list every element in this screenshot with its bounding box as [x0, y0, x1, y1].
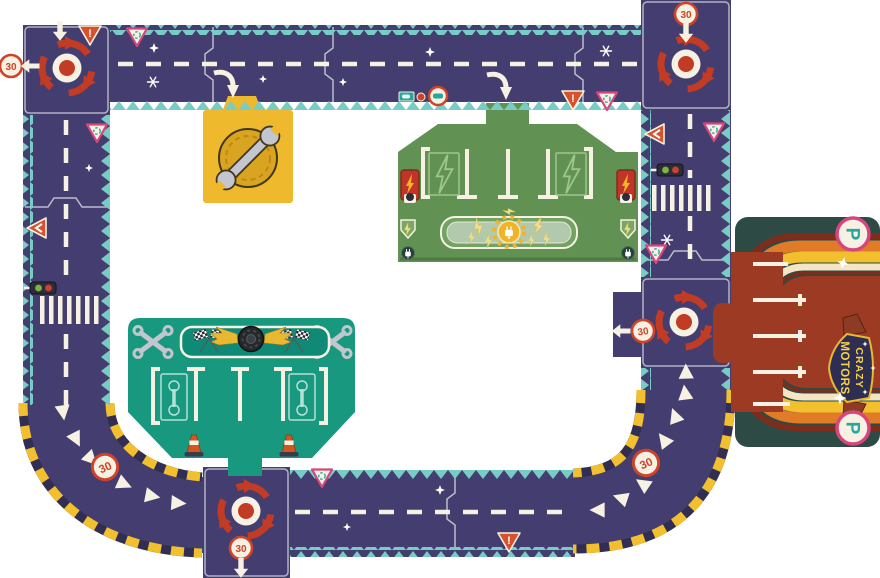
- garage-banner: [181, 327, 329, 358]
- road-puzzle-svg: 30 ! P: [0, 0, 880, 578]
- parking-sign: [837, 218, 869, 250]
- speed-limit-sign: [0, 55, 22, 77]
- parking-piece: CRAZY MOTORS: [713, 217, 880, 447]
- puzzle-scene: 30 ! P: [0, 0, 880, 578]
- repair-piece: [203, 96, 293, 203]
- logo-line2: MOTORS: [838, 341, 850, 394]
- logo-line1: CRAZY: [853, 347, 865, 388]
- speed-limit-sign: [675, 3, 697, 25]
- speed-limit-sign: [631, 319, 656, 344]
- speed-limit-sign: [230, 537, 252, 559]
- charging-post-icon: [617, 170, 635, 203]
- winged-tire-icon: [239, 327, 264, 352]
- parking-sign: [837, 412, 869, 444]
- charging-post-icon: [401, 170, 419, 203]
